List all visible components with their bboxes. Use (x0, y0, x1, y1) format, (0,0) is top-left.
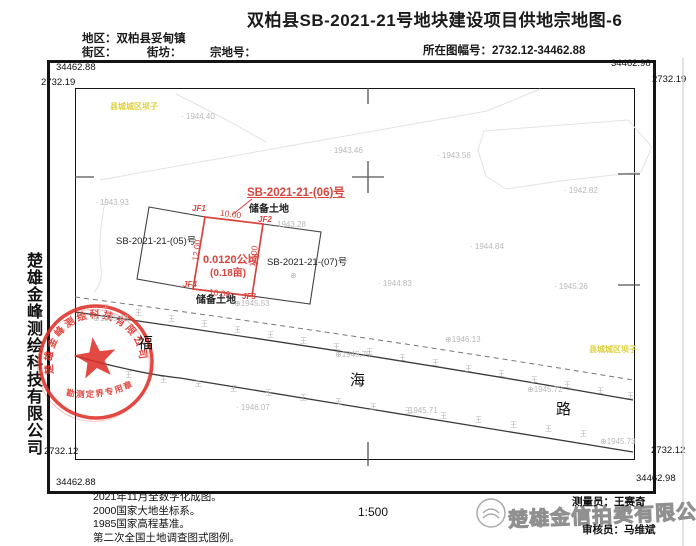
grass-symbol-icon: 王 (597, 388, 604, 395)
grass-symbol-icon: 王 (475, 417, 482, 424)
grass-symbol-icon: 王 (135, 310, 142, 317)
note-line: 2000国家大地坐标系。 (93, 506, 240, 517)
parcel-label-06: SB-2021-21-(06)号 (247, 188, 345, 200)
reviewer-name: 审核员：马维斌 (582, 522, 656, 537)
grass-symbol-icon: 王 (168, 316, 175, 323)
grass-symbol-icon: 王 (102, 305, 109, 312)
grass-symbol-icon: 王 (300, 395, 307, 402)
road-name: 海 (350, 373, 365, 388)
grass-symbol-icon: 王 (370, 404, 377, 411)
boundary-point-label: JF2 (258, 216, 272, 224)
grass-symbol-icon: 王 (160, 377, 167, 384)
grass-symbol-icon: 王 (230, 386, 237, 393)
grass-symbol-icon: 王 (627, 393, 634, 400)
note-line: 第二次全国土地调查图式图例。 (93, 533, 240, 544)
elevation-label: · 1943.56 (437, 152, 471, 160)
grass-symbol-icon: 王 (265, 390, 272, 397)
grass-symbol-icon: 王 (201, 321, 208, 328)
grass-symbol-icon: 王 (267, 332, 274, 339)
land-use-label: 储备土地 (249, 205, 289, 215)
place-label: 县城城区坝子 (589, 346, 637, 354)
elevation-label: ⊕1945.68 (93, 315, 129, 323)
elevation-label: · 1943.46 (329, 147, 363, 155)
elevation-label: · 1943.93 (95, 199, 129, 207)
grass-symbol-icon: 王 (531, 377, 538, 384)
elevation-label: · 1944.83 (378, 280, 412, 288)
grass-symbol-icon: 王 (366, 349, 373, 356)
elevation-point: ⊕ (290, 272, 297, 280)
grass-symbol-icon: 王 (405, 408, 412, 415)
grass-symbol-icon: 王 (440, 413, 447, 420)
elevation-label: · 1944.40 (181, 113, 215, 121)
elevation-label: · 1944.84 (470, 243, 504, 251)
note-line: 2021年11月全数字化成图。 (93, 492, 240, 503)
boundary-point-label: JF1 (192, 205, 206, 213)
grass-symbol-icon: 王 (545, 426, 552, 433)
grass-symbol-icon: 王 (564, 382, 571, 389)
elevation-label: ⊕1945.53 (234, 300, 270, 308)
grass-symbol-icon: 王 (300, 338, 307, 345)
road-name: 路 (556, 402, 571, 417)
road-name: 福 (138, 336, 153, 351)
land-use-label: 储备土地 (196, 296, 236, 306)
boundary-point-label: JF3 (242, 293, 256, 301)
grass-symbol-icon: 王 (125, 372, 132, 379)
grass-symbol-icon: 王 (333, 344, 340, 351)
grass-symbol-icon: 王 (399, 355, 406, 362)
parcel-label-05: SB-2021-21-(05)号 (116, 237, 196, 247)
surveyor-name: 测量员：王赛奇 (572, 494, 646, 509)
grass-symbol-icon: 王 (432, 360, 439, 367)
cadastral-map-page: 双柏县SB-2021-21号地块建设项目供地宗地图-6 地区：双柏县妥甸镇 街区… (0, 0, 696, 546)
elevation-label: 1943.28 (277, 221, 306, 229)
parcel-area-mu: (0.18亩) (210, 269, 246, 279)
grass-symbol-icon: 王 (510, 422, 517, 429)
place-label: 县城城区坝子 (110, 103, 158, 111)
grass-symbol-icon: 王 (234, 327, 241, 334)
elevation-label: ⊕1945.73 (600, 438, 636, 446)
grass-symbol-icon: 王 (465, 366, 472, 373)
grass-symbol-icon: 王 (498, 371, 505, 378)
boundary-point-label: JF4 (183, 281, 197, 289)
map-scale: 1:500 (358, 505, 388, 519)
dimension-label: 10.00 (220, 209, 242, 220)
elevation-label: · 1942.82 (564, 187, 598, 195)
elevation-label: · 1946.07 (236, 404, 270, 412)
parcel-area-hectare: 0.0120公顷 (203, 255, 259, 266)
note-line: 1985国家高程基准。 (93, 519, 240, 530)
grass-symbol-icon: 王 (580, 431, 587, 438)
elevation-label: ⊕1946.13 (445, 336, 481, 344)
map-notes: 2021年11月全数字化成图。 2000国家大地坐标系。 1985国家高程基准。… (93, 492, 240, 543)
parcel-label-07: SB-2021-21-(07)号 (267, 258, 347, 268)
grass-symbol-icon: 王 (195, 381, 202, 388)
map-labels-layer: 县城城区坝子县城城区坝子· 1944.40· 1943.46· 1943.56·… (0, 0, 696, 546)
grass-symbol-icon: 王 (335, 399, 342, 406)
elevation-label: · 1945.26 (554, 283, 588, 291)
elevation-label: ⊕1945.72 (527, 386, 563, 394)
